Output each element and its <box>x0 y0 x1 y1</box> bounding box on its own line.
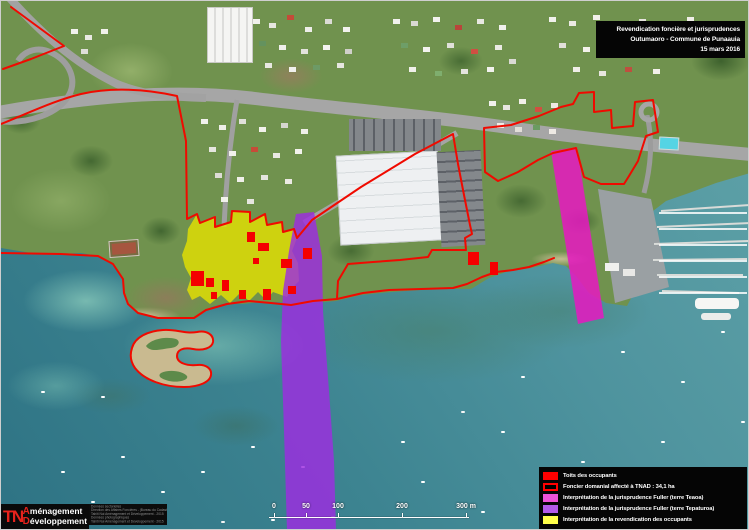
scale-baseline <box>269 517 469 518</box>
legend-item: Interprétation de la revendication des o… <box>543 514 743 525</box>
occupant-roof <box>222 280 229 291</box>
occupant-roof <box>258 243 269 251</box>
credits-line: Tahiti Nui Aménagement et Développement … <box>91 520 167 524</box>
occupant-roof <box>206 278 214 287</box>
legend-box: Toits des occupants Foncier domanial aff… <box>539 467 747 529</box>
logo-word-developpement: éveloppement <box>30 516 87 526</box>
map-title-line: 15 mars 2016 <box>601 45 740 55</box>
credits-box: Données sectoriellesDirection des Affair… <box>89 504 167 525</box>
occupant-roof <box>263 289 271 300</box>
scale-label: 0 <box>272 503 276 510</box>
logo-words: Aménagement Développement <box>23 507 87 526</box>
legend-label: Interprétation de la revendication des o… <box>563 517 692 523</box>
legend-swatch <box>543 472 558 480</box>
scale-tick <box>338 513 339 517</box>
legend-item: Toits des occupants <box>543 470 743 481</box>
occupant-roof <box>253 258 259 264</box>
occupant-roof <box>281 259 292 268</box>
occupant-roof <box>247 232 255 242</box>
occupant-roof <box>288 286 296 294</box>
overlay-fuller-teaoa <box>551 147 604 324</box>
occupant-roof <box>490 262 498 275</box>
scale-bar: 050100200300 m <box>261 501 476 521</box>
credits-inner: Données sectoriellesDirection des Affair… <box>91 505 167 524</box>
scale-label: 100 <box>332 503 344 510</box>
legend-swatch <box>543 483 558 491</box>
occupant-roof <box>468 252 479 265</box>
legend-label: Interprétation de la jurisprudence Fulle… <box>563 495 703 501</box>
scale-label: 300 m <box>456 503 476 510</box>
occupant-roof <box>303 248 312 259</box>
legend-swatch <box>543 505 558 513</box>
tnad-logo: TN Aménagement Développement <box>1 504 89 529</box>
occupant-roof <box>239 290 246 299</box>
occupant-roof <box>211 292 217 299</box>
logo-initial-d: D <box>23 516 30 527</box>
map-title-line: Outumaoro - Commune de Punaauia <box>601 35 740 45</box>
scale-tick <box>306 513 307 517</box>
scale-tick <box>466 513 467 517</box>
legend-item: Interprétation de la jurisprudence Fulle… <box>543 503 743 514</box>
scale-label: 200 <box>396 503 408 510</box>
scale-label: 50 <box>302 503 310 510</box>
map-title-box: Revendication foncière et jurisprudences… <box>596 21 745 58</box>
legend-label: Foncier domanial affecté à TNAD : 34,1 h… <box>563 484 675 490</box>
occupant-roof <box>191 271 204 286</box>
legend-item: Interprétation de la jurisprudence Fulle… <box>543 492 743 503</box>
logo-tn-text: TN <box>3 508 23 525</box>
scale-tick <box>402 513 403 517</box>
map-canvas: Revendication foncière et jurisprudences… <box>0 0 749 530</box>
map-title-line: Revendication foncière et jurisprudences <box>601 25 740 35</box>
logo-word-amenagement: ménagement <box>30 506 82 516</box>
overlay-layer <box>1 1 749 530</box>
legend-item: Foncier domanial affecté à TNAD : 34,1 h… <box>543 481 743 492</box>
scale-tick <box>274 513 275 517</box>
legend-swatch <box>543 494 558 502</box>
legend-swatch <box>543 516 558 524</box>
legend-label: Toits des occupants <box>563 473 617 479</box>
legend-label: Interprétation de la jurisprudence Fulle… <box>563 506 714 512</box>
